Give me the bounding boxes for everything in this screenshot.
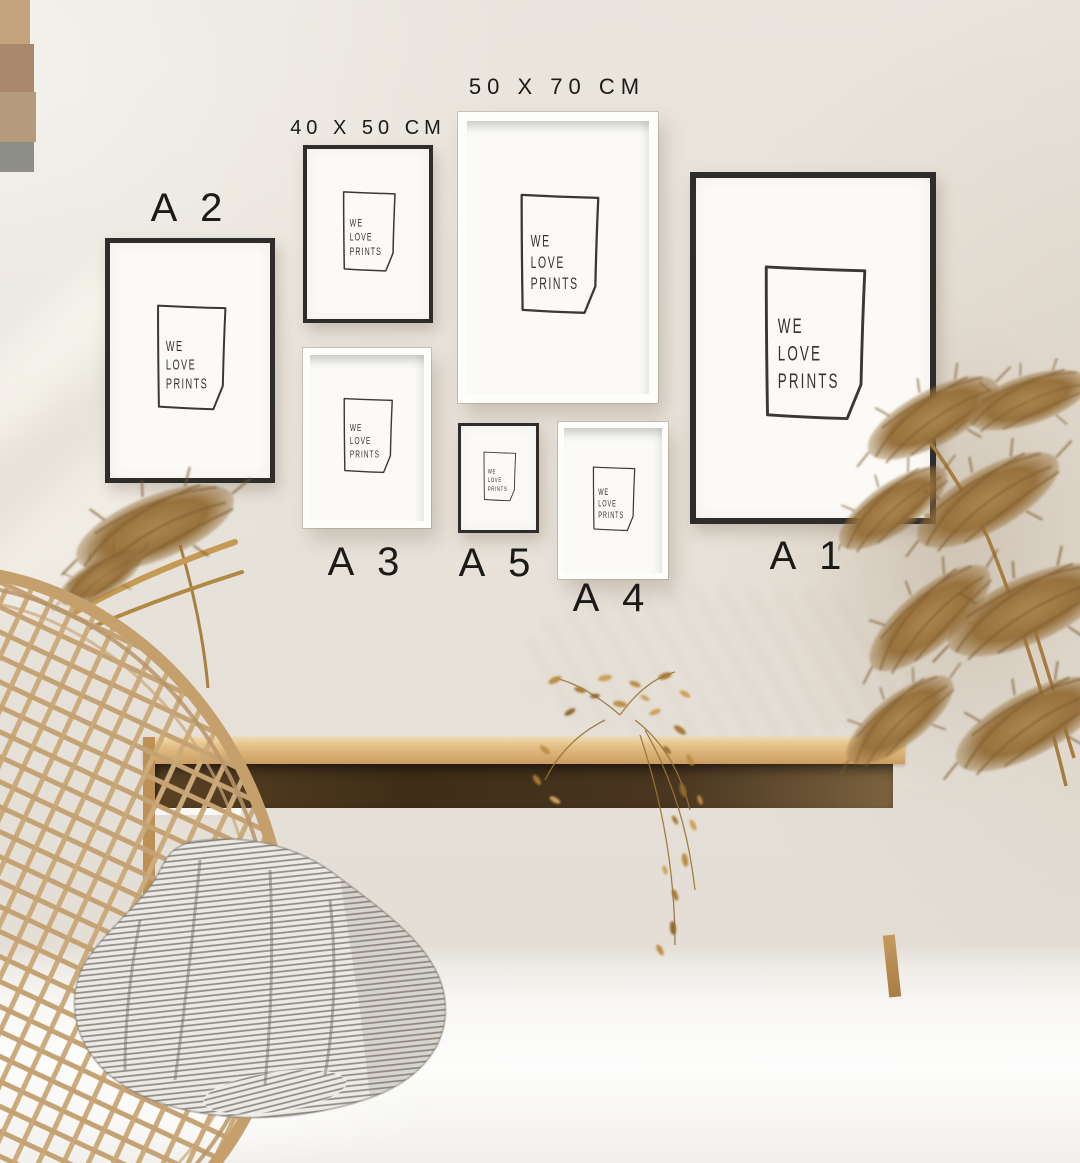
- frame-a5: WE LOVE PRINTS: [458, 423, 539, 533]
- open-magazine: [0, 0, 36, 172]
- print-line: LOVE: [531, 253, 565, 271]
- striped-blanket: [40, 830, 470, 1135]
- we-love-prints-artwork: WE LOVE PRINTS: [336, 388, 398, 484]
- print-line: PRINTS: [350, 448, 380, 460]
- print-line: WE: [778, 314, 804, 338]
- we-love-prints-artwork: WE LOVE PRINTS: [335, 183, 401, 282]
- print-line: PRINTS: [531, 274, 579, 292]
- we-love-prints-artwork: WE LOVE PRINTS: [478, 447, 519, 507]
- print-line: PRINTS: [598, 509, 624, 520]
- magazine-photo: [0, 142, 34, 172]
- we-love-prints-artwork: WE LOVE PRINTS: [587, 457, 640, 541]
- print-line: WE: [166, 337, 184, 354]
- print-line: PRINTS: [350, 246, 382, 258]
- dried-leaf-plant: [525, 660, 715, 960]
- print-line: PRINTS: [487, 486, 507, 493]
- magazine-page: [0, 92, 36, 172]
- print-line: WE: [531, 232, 551, 250]
- print-line: WE: [350, 421, 363, 433]
- magazine-photo: [0, 0, 30, 44]
- size-label-a4: A 4: [507, 576, 717, 621]
- we-love-prints-artwork: WE LOVE PRINTS: [509, 175, 607, 333]
- living-room-print-size-mockup: WE LOVE PRINTS A 2 WE LOVE PRINTS 40 X 5…: [0, 0, 1080, 1163]
- print-line: WE: [487, 469, 495, 476]
- print-line: LOVE: [350, 231, 373, 243]
- magazine-photo: [0, 92, 36, 142]
- frame-40x50: WE LOVE PRINTS: [303, 145, 433, 323]
- print-line: PRINTS: [166, 375, 208, 392]
- print-line: WE: [598, 486, 609, 497]
- print-line: LOVE: [778, 342, 822, 366]
- print-line: LOVE: [487, 477, 501, 484]
- print-line: WE: [350, 217, 363, 229]
- print-line: LOVE: [166, 356, 196, 373]
- print-line: LOVE: [350, 435, 372, 447]
- magazine-page: [0, 0, 36, 92]
- print-line: PRINTS: [778, 369, 840, 393]
- we-love-prints-artwork: WE LOVE PRINTS: [147, 290, 233, 426]
- size-label-a2: A 2: [85, 186, 295, 231]
- print-line: LOVE: [598, 497, 616, 508]
- frame-a3: WE LOVE PRINTS: [303, 348, 431, 528]
- frame-50x70: WE LOVE PRINTS: [458, 112, 658, 403]
- size-label-50x70: 50 X 70 CM: [452, 74, 662, 100]
- frame-a2: WE LOVE PRINTS: [105, 238, 275, 483]
- pampas-grass-right: [838, 358, 1080, 790]
- magazine-photo: [0, 44, 34, 92]
- frame-a4: WE LOVE PRINTS: [558, 422, 668, 579]
- size-label-40x50: 40 X 50 CM: [283, 117, 453, 140]
